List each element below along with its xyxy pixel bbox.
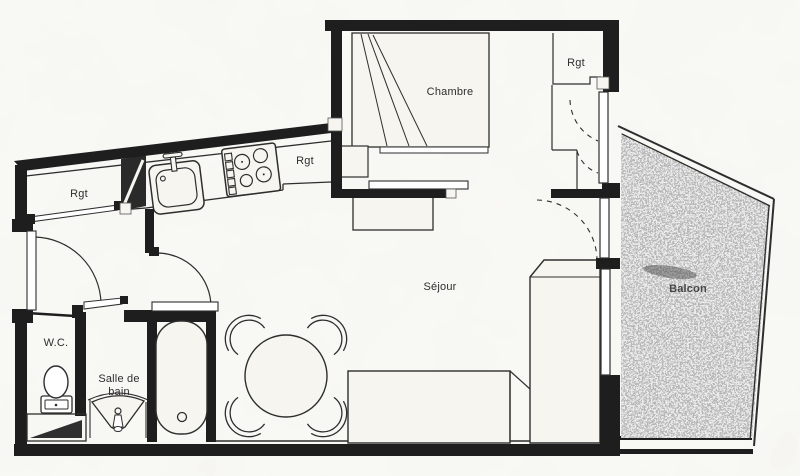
balcony-floor-edge-bottom xyxy=(620,449,753,454)
room-label-sejour: Séjour xyxy=(424,281,457,293)
night-table xyxy=(338,146,368,177)
sofa xyxy=(348,371,510,443)
room-label-rgt-kitchen: Rgt xyxy=(296,155,314,167)
wall-dressing-bottom xyxy=(551,189,604,198)
wall-top xyxy=(325,20,618,31)
wall-wc-right xyxy=(75,312,86,416)
wall-chambre-left xyxy=(331,20,342,197)
sliding-door xyxy=(369,181,468,189)
apartment-floorplan: Chambre Rgt Rgt Rgt Séjour W.C. Salle de… xyxy=(0,0,800,476)
desk xyxy=(353,193,433,230)
entry-door-leaf xyxy=(27,231,36,310)
room-label-wc: W.C. xyxy=(44,337,69,349)
wall-bottom xyxy=(14,444,620,456)
bathtub xyxy=(156,321,207,434)
stove-burners xyxy=(221,143,280,197)
wall-chambre-bottom xyxy=(331,189,455,198)
wall-right-bottom xyxy=(600,375,620,445)
room-label-rgt-entry: Rgt xyxy=(70,188,88,200)
window-balcony-door xyxy=(600,198,609,258)
sofa-group xyxy=(348,371,530,443)
room-label-salle-de-bain-1: Salle de xyxy=(98,373,139,385)
wall-entry-divider xyxy=(145,209,154,253)
wall-left-lower xyxy=(15,310,27,452)
room-label-balcon: Balcon xyxy=(669,283,707,295)
wall-bath-top xyxy=(124,310,216,322)
basin-tap-icon xyxy=(113,415,123,427)
bed-base-board xyxy=(380,147,488,153)
room-label-salle-de-bain-2: bain xyxy=(108,386,130,398)
room-label-rgt-dressing: Rgt xyxy=(567,57,585,69)
window-sejour xyxy=(601,269,610,375)
tall-cabinet xyxy=(530,260,600,443)
window-dressing xyxy=(599,92,608,183)
round-table xyxy=(245,335,327,417)
bathroom-door-leaf xyxy=(152,302,218,311)
room-label-chambre: Chambre xyxy=(427,86,474,98)
floorplan-page: Chambre Rgt Rgt Rgt Séjour W.C. Salle de… xyxy=(0,0,800,476)
